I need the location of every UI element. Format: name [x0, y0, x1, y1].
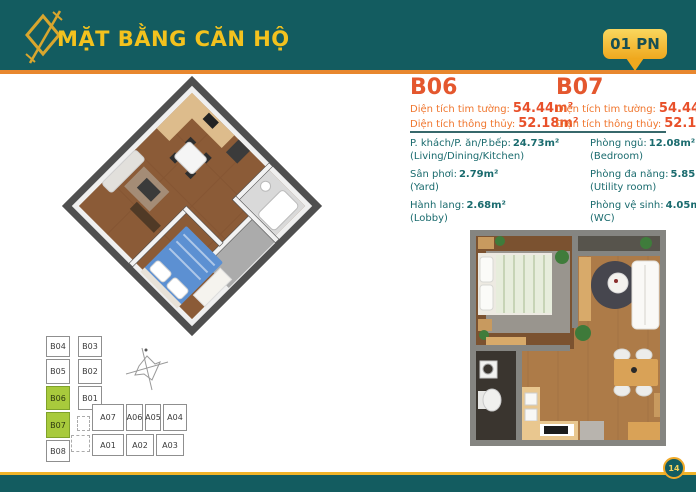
- unit-b06-name: B06: [410, 76, 579, 100]
- unit-b06-gross-area: Diện tích tim tường:54.44m²: [410, 102, 579, 117]
- floorplan-2d-image: [468, 227, 668, 449]
- page-number-badge: 14: [663, 457, 685, 479]
- header-accent-rule: [0, 70, 696, 74]
- keyplan-cell-b07-highlighted: B07: [46, 412, 70, 438]
- unit-b07-room-list: Phòng ngủ:12.08m² (Bedroom) Phòng đa năn…: [590, 137, 696, 230]
- brochure-page: MẶT BẰNG CĂN HỘ 01 PN: [0, 0, 696, 492]
- keyplan-cell-a04: A04: [163, 404, 187, 431]
- page-title: MẶT BẰNG CĂN HỘ: [57, 27, 290, 51]
- room-item: Phòng ngủ:12.08m² (Bedroom): [590, 137, 696, 163]
- footer-band: [0, 475, 696, 492]
- building-key-plan: B04 B03 B05 B02 B06 B01 B07 B08 A07 A06 …: [40, 332, 208, 472]
- keyplan-cell-b03: B03: [78, 336, 102, 357]
- badge-pointer: [626, 58, 644, 71]
- keyplan-cell-a07: A07: [92, 404, 124, 431]
- keyplan-cell-b06-highlighted: B06: [46, 386, 70, 410]
- room-item: Sân phơi:2.79m² (Yard): [410, 168, 559, 194]
- room-item: Phòng đa năng:5.85m² (Utility room): [590, 168, 696, 194]
- room-item: Hành lang:2.68m² (Lobby): [410, 199, 559, 225]
- keyplan-corridor: [77, 416, 90, 431]
- metrics-divider: [410, 131, 666, 133]
- keyplan-cell-b04: B04: [46, 336, 70, 357]
- unit-b06-net-area: Diện tích thông thủy:52.18m²: [410, 117, 579, 132]
- compass-icon: [122, 344, 172, 394]
- keyplan-cell-a05: A05: [145, 404, 161, 431]
- keyplan-cell-b08: B08: [46, 440, 70, 462]
- keyplan-cell-a02: A02: [126, 434, 154, 456]
- unit-b07-info: B07 Diện tích tim tường:54.44m² Diện tíc…: [556, 76, 696, 132]
- keyplan-cell-b05: B05: [46, 359, 70, 384]
- keyplan-corridor: [71, 435, 90, 452]
- floorplan-3d-image: [48, 76, 332, 344]
- unit-b07-name: B07: [556, 76, 696, 100]
- bedroom-count-badge: 01 PN: [603, 29, 667, 59]
- unit-b06-info: B06 Diện tích tim tường:54.44m² Diện tíc…: [410, 76, 579, 132]
- unit-b07-gross-area: Diện tích tim tường:54.44m²: [556, 102, 696, 117]
- unit-b07-net-area: Diện tích thông thủy:52.18m²: [556, 117, 696, 132]
- keyplan-cell-b02: B02: [78, 359, 102, 384]
- unit-b06-room-list: P. khách/P. ăn/P.bếp:24.73m² (Living/Din…: [410, 137, 559, 230]
- room-item: Phòng vệ sinh:4.05m² (WC): [590, 199, 696, 225]
- keyplan-cell-a06: A06: [126, 404, 143, 431]
- room-item: P. khách/P. ăn/P.bếp:24.73m² (Living/Din…: [410, 137, 559, 163]
- keyplan-cell-a01: A01: [92, 434, 124, 456]
- keyplan-cell-a03: A03: [156, 434, 184, 456]
